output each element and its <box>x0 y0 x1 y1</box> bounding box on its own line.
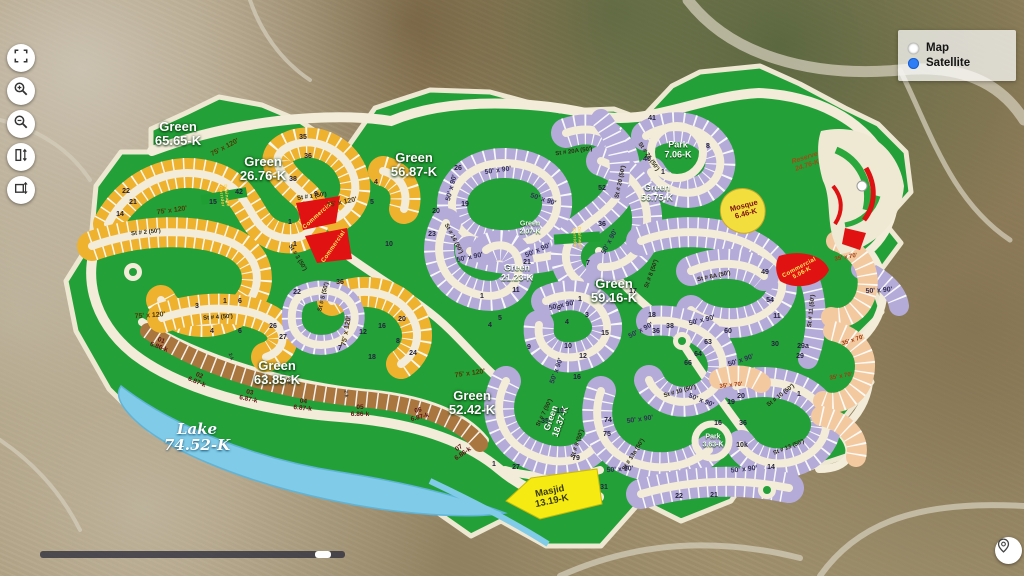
radio-satellite[interactable] <box>908 58 919 69</box>
map-type-control: Map Satellite <box>898 30 1016 81</box>
zoom-out-button[interactable] <box>7 110 35 138</box>
map-type-label-map: Map <box>926 42 949 54</box>
map-type-option-satellite[interactable]: Satellite <box>908 57 1006 69</box>
zoom-in-icon <box>13 81 29 102</box>
map-type-option-map[interactable]: Map <box>908 42 1006 54</box>
radio-map[interactable] <box>908 43 919 54</box>
reset-extent-button[interactable] <box>7 44 35 72</box>
scrollbar-thumb[interactable] <box>315 551 331 558</box>
mosque-shape <box>720 189 765 234</box>
map-toolbar <box>7 44 35 204</box>
map-canvas[interactable]: Green65.65-KGreen26.76-KGreen56.87-KGree… <box>0 0 1024 576</box>
horizontal-scrollbar[interactable] <box>40 551 345 558</box>
measure-area-icon <box>13 180 29 201</box>
measure-area-button[interactable] <box>7 176 35 204</box>
zoom-in-button[interactable] <box>7 77 35 105</box>
reset-extent-icon <box>13 48 29 69</box>
zoom-out-icon <box>13 114 29 135</box>
measure-vertical-icon <box>13 147 29 168</box>
map-type-label-satellite: Satellite <box>926 57 970 69</box>
master-plan-svg <box>0 0 1024 576</box>
measure-vertical-button[interactable] <box>7 143 35 171</box>
locate-button[interactable] <box>995 537 1022 564</box>
